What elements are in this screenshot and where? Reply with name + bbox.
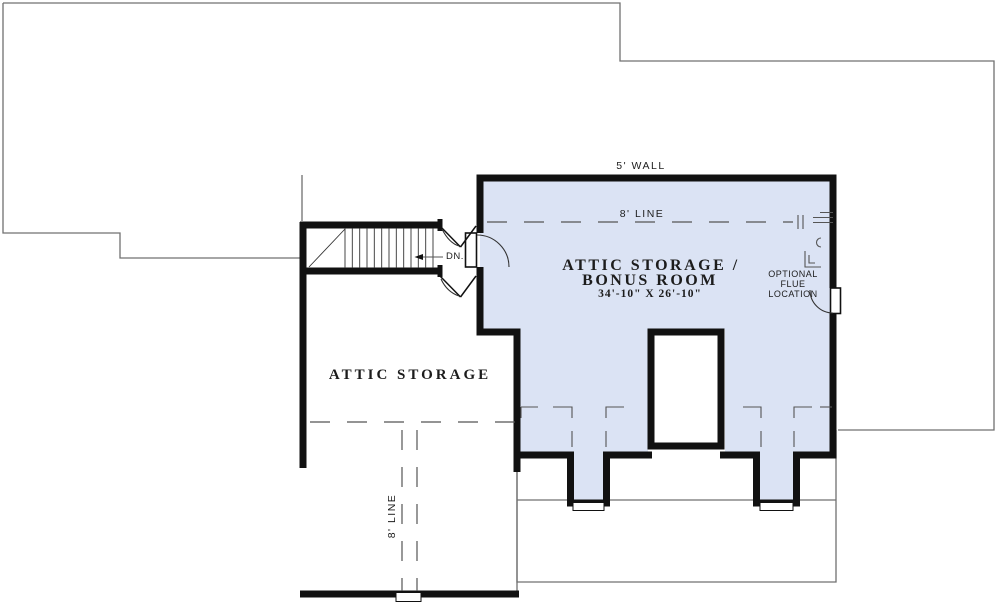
door-leaf-right bbox=[831, 288, 841, 314]
attic-storage-name: ATTIC STORAGE bbox=[329, 368, 491, 383]
bonus-room-name-line2: BONUS ROOM bbox=[582, 273, 718, 289]
flue-label-line1: OPTIONAL bbox=[768, 270, 818, 279]
dn-arrow bbox=[415, 254, 444, 260]
floor-plan-drawing bbox=[0, 0, 997, 602]
eight-foot-line-attic-v bbox=[402, 430, 417, 591]
floor-plan: 5' WALL 8' LINE ATTIC STORAGE / BONUS RO… bbox=[0, 0, 997, 602]
flue-label-line2: FLUE bbox=[780, 280, 805, 289]
stairs-down-label: DN. bbox=[446, 252, 464, 262]
bonus-room-dimensions: 34'-10" X 26'-10" bbox=[598, 289, 702, 301]
ceiling-line-label-attic: 8' LINE bbox=[387, 494, 398, 539]
staircase bbox=[309, 228, 443, 268]
wall-height-label: 5' WALL bbox=[616, 161, 665, 172]
dormer-windows bbox=[396, 503, 793, 602]
gable-vent bbox=[396, 593, 421, 602]
ceiling-line-label-bonus: 8' LINE bbox=[620, 209, 665, 220]
flue-label-line3: LOCATION bbox=[768, 290, 817, 299]
